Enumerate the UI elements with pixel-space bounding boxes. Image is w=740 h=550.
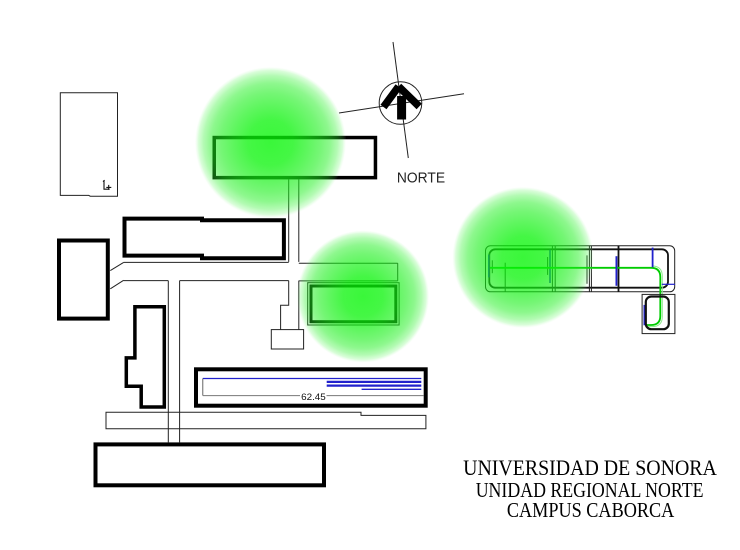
svg-text:62.45: 62.45 xyxy=(301,392,326,402)
svg-text:UNIVERSIDAD DE SONORA: UNIVERSIDAD DE SONORA xyxy=(463,455,717,480)
svg-text:NORTE: NORTE xyxy=(397,170,445,187)
svg-text:CAMPUS CABORCA: CAMPUS CABORCA xyxy=(507,498,675,522)
